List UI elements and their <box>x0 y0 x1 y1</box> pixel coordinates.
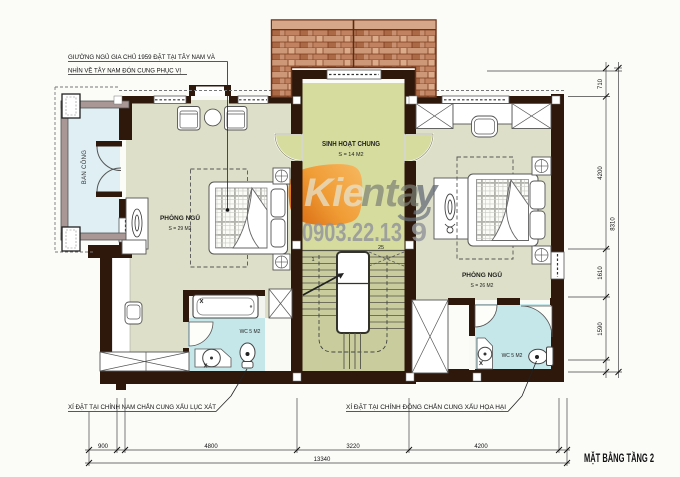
svg-text:PHÒNG NGỦ: PHÒNG NGỦ <box>462 270 502 279</box>
svg-text:BAN CÔNG: BAN CÔNG <box>81 150 88 184</box>
svg-text:S = 26 M2: S = 26 M2 <box>471 283 494 289</box>
svg-text:S = 29 M2: S = 29 M2 <box>169 226 192 232</box>
svg-text:WC 5 M2: WC 5 M2 <box>502 353 523 359</box>
svg-text:PHÒNG NGỦ: PHÒNG NGỦ <box>160 213 200 222</box>
svg-text:9: 9 <box>411 217 427 247</box>
svg-text:0903.22.13: 0903.22.13 <box>302 217 402 247</box>
svg-text:WC 5 M2: WC 5 M2 <box>240 329 261 335</box>
svg-text:MẶT BẰNG TẦNG 2: MẶT BẰNG TẦNG 2 <box>584 450 654 465</box>
svg-text:SINH HOẠT CHUNG: SINH HOẠT CHUNG <box>322 141 380 148</box>
svg-text:1610: 1610 <box>598 266 604 280</box>
svg-text:GIƯỜNG NGỦ GIA CHỦ 1959 ĐẶT TẠ: GIƯỜNG NGỦ GIA CHỦ 1959 ĐẶT TẠI TÂY NAM … <box>68 52 216 61</box>
svg-text:4800: 4800 <box>204 444 218 450</box>
svg-text:y: y <box>413 171 439 215</box>
svg-text:710: 710 <box>598 78 604 89</box>
svg-text:nta: nta <box>361 171 419 215</box>
svg-text:4200: 4200 <box>598 166 604 180</box>
svg-text:S = 14 M2: S = 14 M2 <box>338 152 363 158</box>
svg-text:900: 900 <box>98 444 109 450</box>
svg-text:8310: 8310 <box>611 217 617 231</box>
svg-text:4200: 4200 <box>474 444 488 450</box>
svg-text:13340: 13340 <box>314 457 331 463</box>
svg-text:3220: 3220 <box>346 444 360 450</box>
svg-text:1: 1 <box>311 257 314 263</box>
svg-text:1590: 1590 <box>598 322 604 336</box>
svg-text:Kie: Kie <box>304 171 365 215</box>
